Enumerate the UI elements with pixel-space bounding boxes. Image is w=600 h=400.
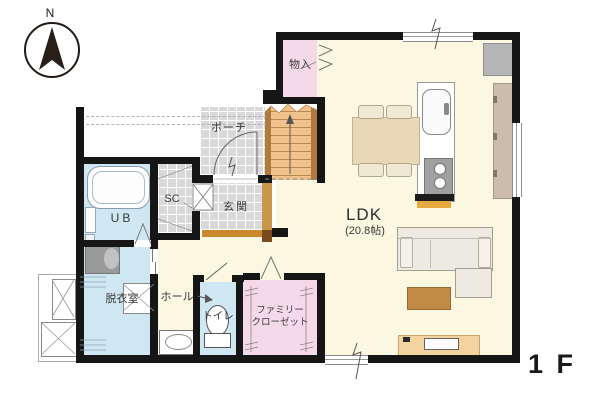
storage-folding-door bbox=[319, 59, 332, 70]
room-label-toilet: トイレ bbox=[202, 311, 234, 322]
storage-folding-door bbox=[319, 45, 332, 56]
floor-plan-canvas: 物入 ポーチ SC 玄関 UB 脱衣室 ホール トイレ ファミリー クローゼット… bbox=[0, 0, 600, 400]
room-label-hall: ホール bbox=[161, 292, 194, 303]
room-label-porch: ポーチ bbox=[211, 123, 247, 134]
compass-north-label: N bbox=[46, 7, 55, 19]
room-label-ldk: LDK bbox=[346, 206, 382, 223]
ub-folding-door bbox=[135, 224, 151, 244]
room-label-entrance: 玄関 bbox=[223, 202, 249, 213]
toilet-door-leaf bbox=[206, 263, 227, 280]
room-label-dressing-room: 脱衣室 bbox=[106, 294, 139, 305]
stair-break bbox=[265, 104, 317, 113]
room-label-storage: 物入 bbox=[289, 60, 311, 71]
room-label-family-closet-line1: ファミリー bbox=[256, 306, 304, 316]
room-label-shoe-closet: SC bbox=[164, 194, 179, 205]
closet-folding-door bbox=[261, 257, 281, 279]
entrance-door-arc bbox=[214, 132, 257, 175]
room-label-ldk-area: (20.8帖) bbox=[345, 226, 385, 237]
sliding-door bbox=[153, 249, 156, 274]
room-label-family-closet-line2: クローゼット bbox=[251, 318, 308, 328]
room-label-unit-bath: UB bbox=[111, 212, 134, 224]
compass-needle-icon bbox=[22, 20, 82, 80]
floor-label: 1 F bbox=[528, 349, 576, 380]
